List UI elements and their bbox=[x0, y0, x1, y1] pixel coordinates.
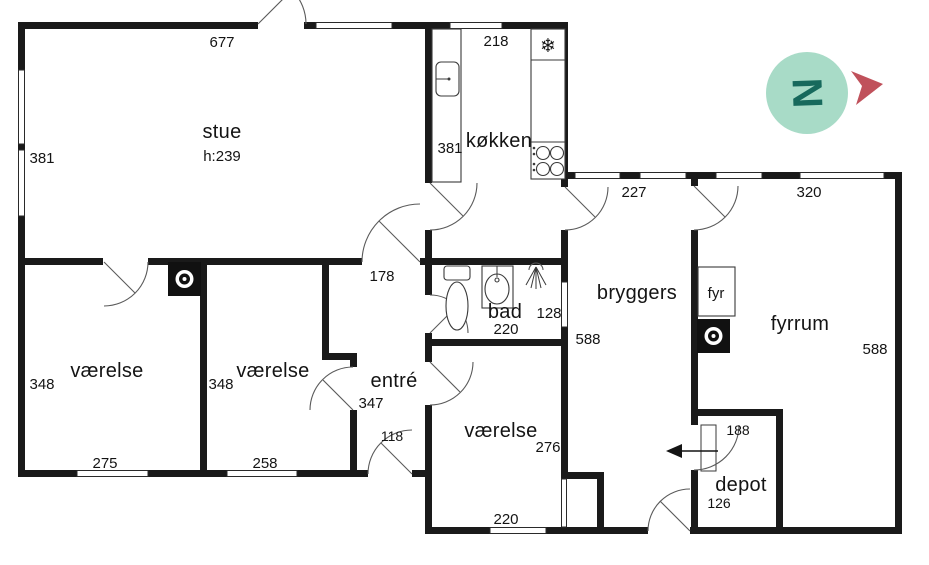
room-label-kokken: køkken bbox=[466, 130, 532, 152]
window-stue-left-2 bbox=[19, 150, 25, 216]
dim-vaerelse3-width: 220 bbox=[493, 511, 518, 528]
fixtures: ❄ bbox=[168, 29, 735, 353]
room-label-vaerelse-1: værelse bbox=[70, 360, 143, 382]
dim-vaerelse3-depth: 276 bbox=[535, 439, 560, 456]
kitchen-counter-right: ❄ bbox=[531, 29, 565, 179]
dim-stue-depth: 381 bbox=[29, 150, 54, 167]
door-stue-room1 bbox=[104, 262, 148, 306]
window-fyrrum-top-2 bbox=[800, 173, 884, 179]
room-label-bad: bad bbox=[488, 301, 522, 323]
floor-plan: ❄ bbox=[0, 0, 929, 565]
dim-entre-length: 347 bbox=[358, 395, 383, 412]
wood-stove-icon bbox=[168, 262, 201, 296]
room-label-vaerelse-2: værelse bbox=[236, 360, 309, 382]
dim-stue-width: 677 bbox=[209, 34, 234, 51]
dim-bad-depth: 128 bbox=[536, 305, 561, 322]
freezer-icon: ❄ bbox=[540, 36, 556, 57]
chimney-icon bbox=[697, 319, 730, 353]
window-room3-bottom bbox=[490, 528, 546, 534]
room-label-stue: stue bbox=[202, 121, 241, 143]
kitchen-counter-left bbox=[432, 29, 461, 182]
door-bryggers-fyrrum bbox=[694, 186, 738, 230]
room-label-depot: depot bbox=[715, 474, 767, 496]
door-stue-kitchen bbox=[430, 183, 477, 230]
window-bryggers-top-1 bbox=[575, 173, 620, 179]
north-arrow-icon bbox=[851, 71, 883, 105]
room-label-fyrrum: fyrrum bbox=[771, 313, 829, 335]
dim-bad-width: 220 bbox=[493, 321, 518, 338]
window-fyrrum-top-1 bbox=[716, 173, 762, 179]
window-stue-top bbox=[316, 23, 392, 29]
compass-north-letter: N bbox=[783, 77, 831, 109]
dim-fyrrum-width: 320 bbox=[796, 184, 821, 201]
door-entre-room3 bbox=[430, 362, 473, 405]
dim-vaerelse1-width: 275 bbox=[92, 455, 117, 472]
dim-depot-width: 188 bbox=[726, 422, 750, 438]
kitchen-sink-icon bbox=[436, 62, 459, 96]
compass: N bbox=[766, 52, 883, 134]
window-bryggers-top-2 bbox=[640, 173, 686, 179]
door-stue-exterior bbox=[258, 0, 306, 24]
window-nook bbox=[562, 479, 567, 527]
dim-bryggers-depth: 588 bbox=[575, 331, 600, 348]
room-label-vaerelse-3: værelse bbox=[464, 420, 537, 442]
window-kitchen-top bbox=[450, 23, 502, 29]
dim-kokken-width: 218 bbox=[483, 33, 508, 50]
dim-vaerelse2-width: 258 bbox=[252, 455, 277, 472]
dim-entre-width: 118 bbox=[381, 428, 404, 444]
opening-bad-bryggers bbox=[562, 282, 568, 327]
room-label-entre: entré bbox=[370, 370, 417, 392]
door-kitchen-bryggers bbox=[565, 187, 608, 230]
door-bryggers-exterior bbox=[648, 489, 690, 531]
dim-depot-depth: 126 bbox=[707, 495, 731, 511]
boiler-label: fyr bbox=[708, 285, 725, 302]
door-stue-entre bbox=[362, 204, 420, 262]
toilet-icon bbox=[444, 266, 470, 330]
dim-bryggers-width: 227 bbox=[621, 184, 646, 201]
svg-text:❄: ❄ bbox=[540, 36, 556, 57]
stue-ceiling-height: h:239 bbox=[203, 148, 241, 165]
floor-plan-canvas: ❄ bbox=[0, 0, 929, 565]
room-label-bryggers: bryggers bbox=[597, 282, 677, 304]
boiler-box: fyr bbox=[698, 267, 735, 316]
door-entre-room2 bbox=[310, 367, 353, 410]
dim-fyrrum-depth: 588 bbox=[862, 341, 887, 358]
shower-icon bbox=[526, 263, 546, 289]
window-stue-left-1 bbox=[19, 70, 25, 144]
dim-vaerelse2-depth: 348 bbox=[208, 376, 233, 393]
dim-vaerelse1-depth: 348 bbox=[29, 376, 54, 393]
dim-kokken-depth: 381 bbox=[437, 140, 462, 157]
dim-entre-top: 178 bbox=[369, 268, 394, 285]
